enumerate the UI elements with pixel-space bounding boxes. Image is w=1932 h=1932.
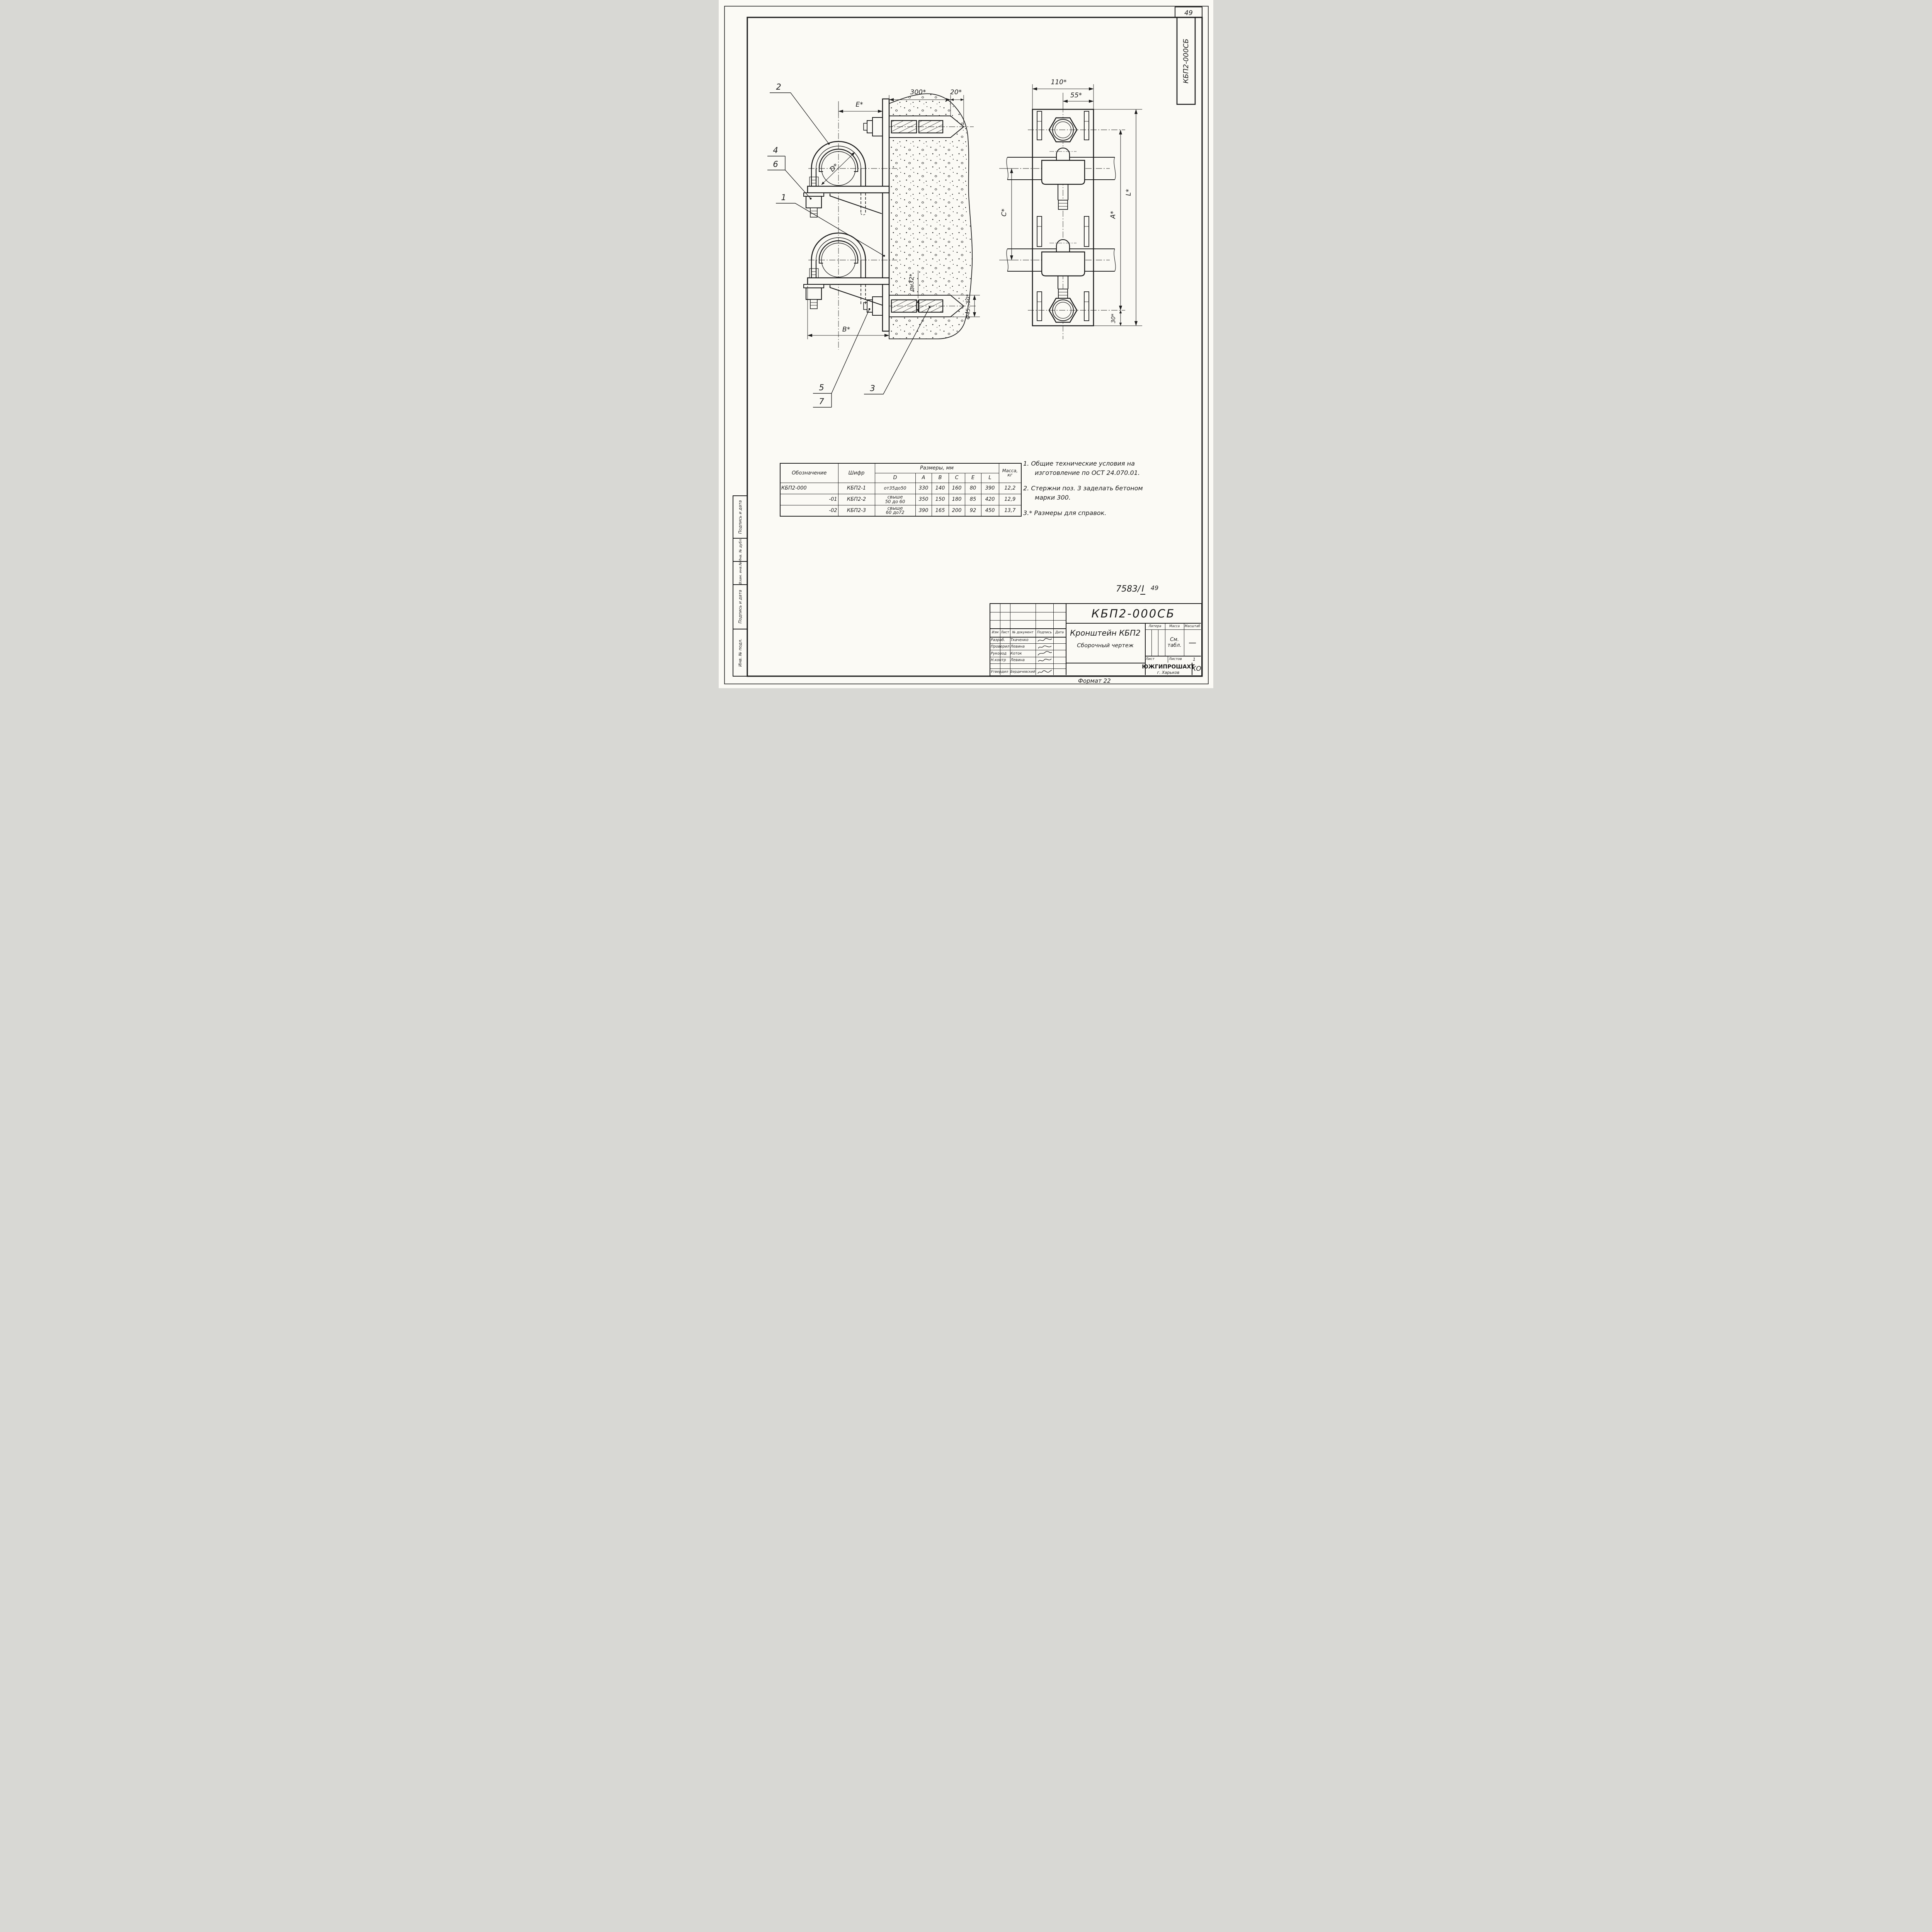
tb-sheet-label: Лист <box>1146 656 1167 663</box>
technical-notes: 1. Общие технические условия на изготовл… <box>1023 459 1205 524</box>
tb-name-2: Коток <box>1010 650 1035 657</box>
tb-col-date: Дата <box>1053 628 1066 637</box>
svg-text:2: 2 <box>776 82 781 92</box>
tb-mass-label: Масса <box>1165 623 1184 629</box>
tb-col-sign: Подпись <box>1036 628 1053 637</box>
tb-role-3: Н.контр <box>991 657 1010 663</box>
document-reference: 7583/I49 <box>1116 584 1158 594</box>
col-size-b: B <box>932 473 949 483</box>
col-size-e: E <box>965 473 981 483</box>
dim-55: 55* <box>1070 92 1082 99</box>
margin-label-4: Инв. № подл. <box>738 639 743 667</box>
clamp-bar-bottom <box>808 278 889 284</box>
clamp-front-bottom <box>1042 240 1085 298</box>
callout-1: 1 <box>776 193 885 257</box>
callout-2: 2 <box>770 82 830 145</box>
table-row: -02 КБП2-3 свыше60 до72 390 165 200 92 4… <box>780 505 1021 516</box>
svg-text:6: 6 <box>773 160 778 169</box>
signature <box>1036 637 1053 643</box>
col-mass: Масса, кг <box>999 463 1021 483</box>
tb-doc-number: КБП2-000СБ <box>1066 604 1201 623</box>
tb-dept-code: КО <box>1192 663 1201 675</box>
anchor-bolt-head-top <box>872 117 883 136</box>
col-size-d: D <box>875 473 915 483</box>
margin-label-3: Подпись и дата <box>738 590 743 624</box>
dim-e: E* <box>855 101 863 109</box>
dimension-labels: E* 300* 20* B* D* дн32* Ф45...50* 110* 5… <box>828 78 1133 333</box>
table-row: КБП2-000 КБП2-1 от35до50 330 140 160 80 … <box>780 483 1021 494</box>
tb-name-1: Левина <box>1010 643 1035 650</box>
col-size-a: A <box>915 473 932 483</box>
col-sizes: Размеры, мм <box>875 463 999 473</box>
callout-4-6: 4 6 <box>767 146 811 199</box>
col-size-c: C <box>949 473 965 483</box>
dim-30: 30* <box>1111 314 1117 323</box>
dim-c: C* <box>1000 209 1008 216</box>
clamp-bar-top <box>808 186 889 193</box>
hex-nut-top <box>1028 118 1125 142</box>
drawing-sheet: 49 КБП2-000СБ Подпись и дата Инв. № дубл… <box>719 0 1213 688</box>
dim-110: 110* <box>1051 78 1067 86</box>
dim-20: 20* <box>950 88 962 96</box>
svg-text:5: 5 <box>819 383 824 392</box>
tb-name-3: Левина <box>1010 657 1035 663</box>
tb-scale-label: Масштаб <box>1184 623 1201 629</box>
tb-role-1: Проверил <box>991 643 1010 650</box>
signature <box>1036 657 1053 663</box>
sheet-frame: 49 КБП2-000СБ <box>724 6 1208 684</box>
dim-l: L* <box>1125 189 1133 196</box>
dim-a: A* <box>1109 211 1117 219</box>
margin-label-0: Подпись и дата <box>738 500 743 534</box>
svg-text:1: 1 <box>781 193 786 202</box>
format-label: Формат 22 <box>1078 677 1111 684</box>
tb-role-0: Разраб. <box>991 637 1010 643</box>
signature <box>1036 668 1053 675</box>
note-2: 2. Стержни поз. 3 заделать бетоном марки… <box>1023 484 1205 502</box>
tb-name-4: Бердичевский <box>1010 668 1035 675</box>
title-block: Изм Лист № документ Подпись Дата Разраб.… <box>990 603 1202 676</box>
note-1: 1. Общие технические условия на изготовл… <box>1023 459 1205 478</box>
signature <box>1036 650 1053 657</box>
margin-label-2: Взам. инв.№ <box>739 562 743 584</box>
dim-d: D* <box>828 162 840 173</box>
svg-text:7: 7 <box>819 397 824 406</box>
clamp-plate-top <box>1042 160 1085 184</box>
nut-bottom <box>806 288 821 299</box>
tb-col-list: Лист <box>1000 628 1010 637</box>
front-view <box>999 84 1142 339</box>
dim-rod: дн32* <box>908 274 915 292</box>
anchor-bolt-head-bottom <box>872 297 883 315</box>
note-3: 3.* Размеры для справок. <box>1023 509 1205 518</box>
gusset-bottom <box>830 285 883 305</box>
callout-5-7: 5 7 <box>813 308 870 407</box>
tb-sheets-value: 1 <box>1189 656 1199 663</box>
clamp-plate-bottom <box>1042 252 1085 276</box>
tb-mass-value: См. табл. <box>1165 629 1184 656</box>
table-row: -01 КБП2-2 свыше50 до 60 350 150 180 85 … <box>780 494 1021 505</box>
dim-hole: Ф45...50* <box>965 294 971 320</box>
margin-label-1: Инв. № дубл. <box>739 538 743 562</box>
nut-top <box>806 196 821 208</box>
tb-scale-value: — <box>1184 629 1201 656</box>
col-code: Шифр <box>838 463 875 483</box>
washer-bottom <box>804 284 824 288</box>
gusset-top <box>830 194 882 214</box>
tb-name-0: Ткаченко <box>1010 637 1035 643</box>
tb-org-city: г. Харьков <box>1145 670 1192 675</box>
tb-product: Кронштейн КБП2 <box>1066 626 1145 639</box>
tb-sheets-label: Листов <box>1169 656 1190 663</box>
tb-role-4: Утвердил <box>991 668 1010 675</box>
tb-litera-label: Литера <box>1145 623 1165 629</box>
corner-stamp-text: КБП2-000СБ <box>1182 39 1190 83</box>
tb-col-docnum: № документ <box>1010 628 1036 637</box>
tb-col-izm: Изм <box>990 628 1000 637</box>
col-size-l: L <box>981 473 999 483</box>
spec-table: Обозначение Шифр Размеры, мм Масса, кг D… <box>780 463 1022 517</box>
margin-column: Подпись и дата Инв. № дубл. Взам. инв.№ … <box>733 496 747 676</box>
dim-300: 300* <box>910 88 926 96</box>
dim-b: B* <box>842 326 850 333</box>
tb-role-2: Руковод <box>991 650 1010 657</box>
col-designation: Обозначение <box>780 463 838 483</box>
svg-text:3: 3 <box>870 384 875 393</box>
signature <box>1036 643 1053 650</box>
tb-doc-type: Сборочный чертеж <box>1066 641 1145 650</box>
section-view <box>804 94 980 350</box>
mounting-plate <box>883 99 889 331</box>
svg-text:4: 4 <box>773 146 778 155</box>
page-number: 49 <box>1184 9 1193 17</box>
